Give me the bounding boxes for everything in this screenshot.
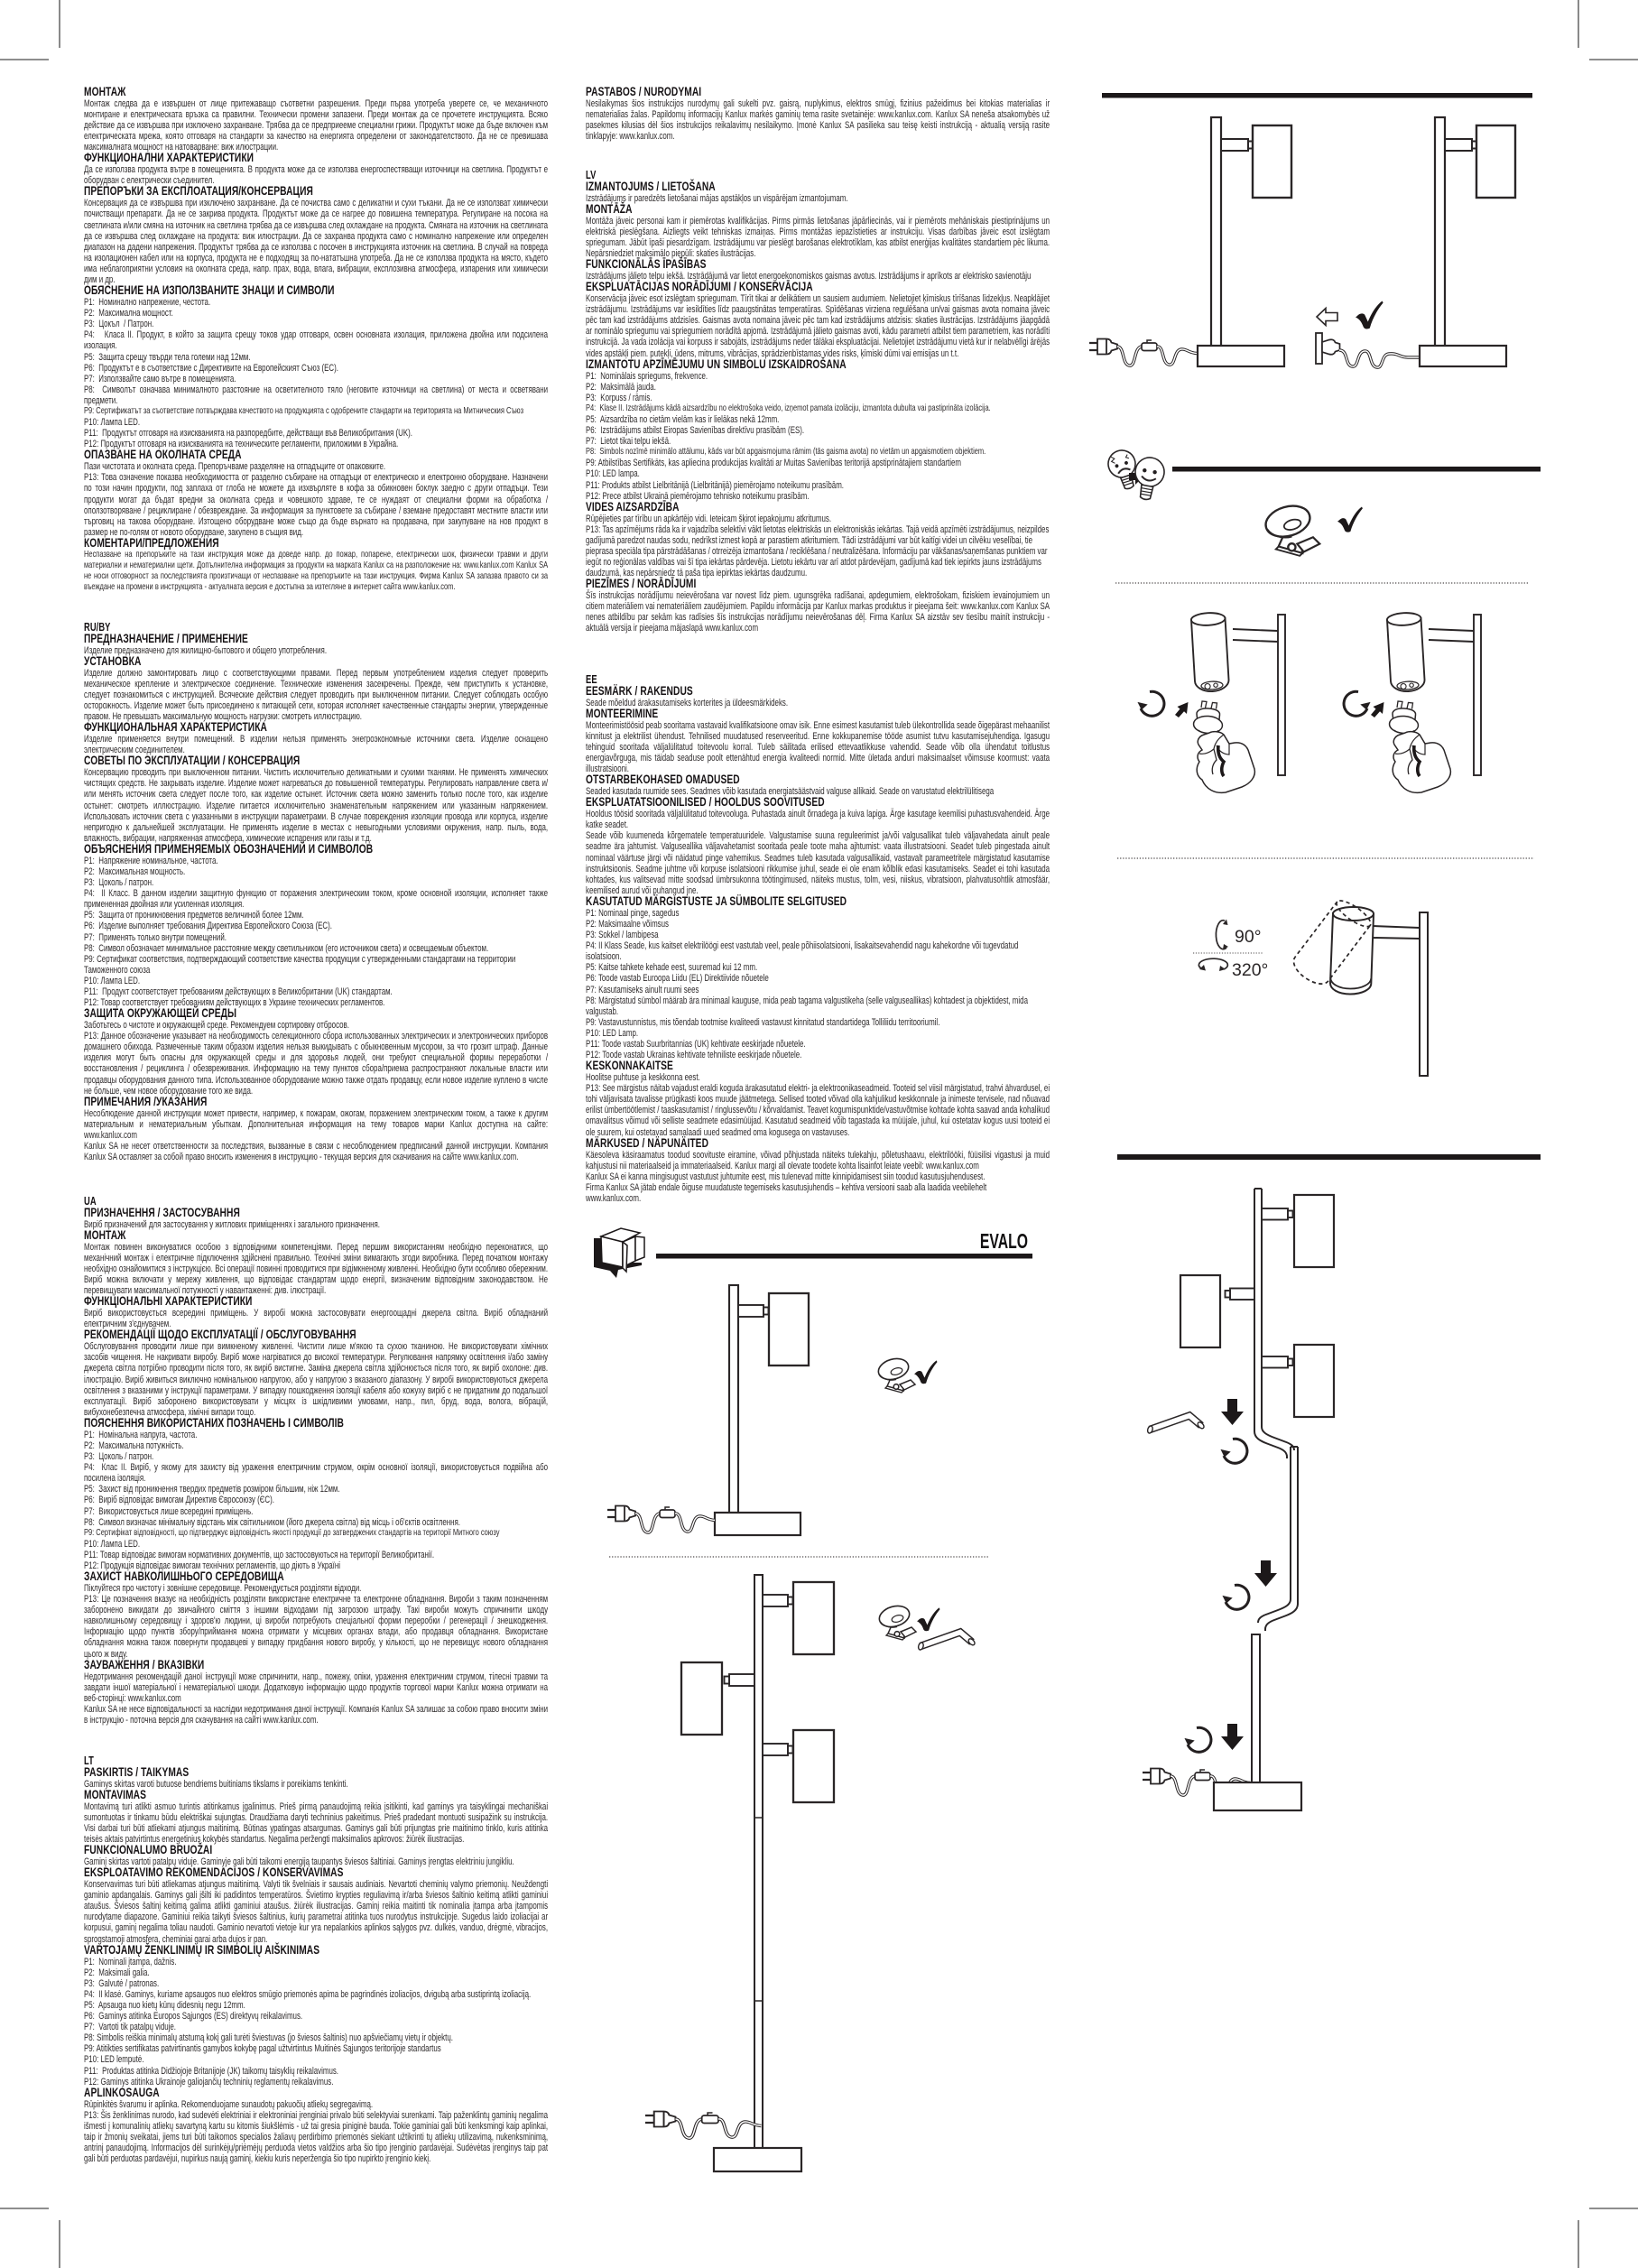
svg-text:EVALO: EVALO bbox=[980, 1230, 1028, 1254]
svg-text:320°: 320° bbox=[1232, 960, 1268, 980]
svg-text:90°: 90° bbox=[1235, 927, 1262, 947]
